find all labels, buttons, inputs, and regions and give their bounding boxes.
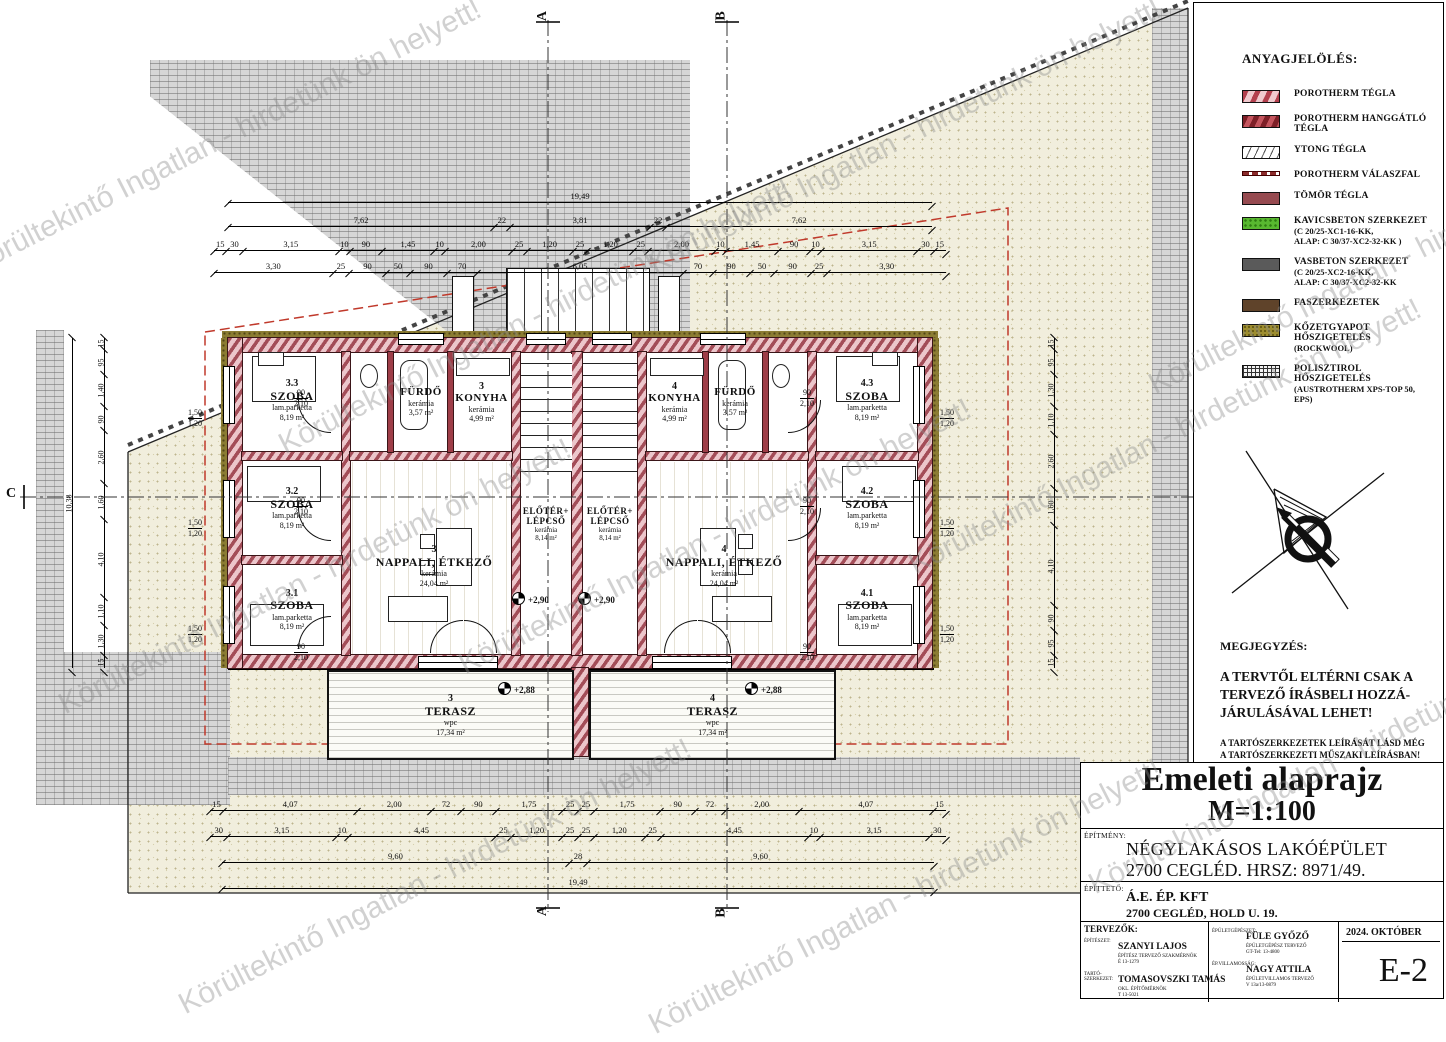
room-name: TERASZ <box>425 705 476 719</box>
material-label: VASBETON SZERKEZET <box>1294 257 1408 267</box>
material-spec: (C 20/25-XC1-16-KK, <box>1294 226 1427 236</box>
room-label: 4 TERASZ wpc 17,34 m² <box>589 670 836 760</box>
notes-title: MEGJEGYZÉS: <box>1220 639 1433 654</box>
dimension-chain: 19,49 <box>222 876 934 892</box>
dimension-chain: 3,3025905090706,0570905090253,30 <box>214 260 946 276</box>
material-swatch <box>1242 90 1280 103</box>
drawing-scale: M=1:100 <box>1208 797 1316 828</box>
material-swatch <box>1242 299 1280 312</box>
room-area: 24,04 m² <box>420 579 449 588</box>
material-swatch <box>1242 115 1280 128</box>
room-label: ELŐTÉR+ LÉPCSŐ kerámia 8,14 m² <box>518 468 574 580</box>
room-number: 4 <box>710 693 715 705</box>
legend-items: POROTHERM TÉGLA POROTHERM HANGGÁTLÓ TÉGL… <box>1214 89 1433 404</box>
room-floor-material: kerámia <box>599 526 622 534</box>
building-name: NÉGYLAKÁSOS LAKÓÉPÜLET <box>1126 839 1443 860</box>
dimension-chain: 7,62223,81227,62 <box>228 214 932 230</box>
designer-role: TARTÓ-SZERKEZET: <box>1084 969 1118 1000</box>
material-spec: (AUSTROTHERM XPS-TOP 50, EPS) <box>1294 384 1433 404</box>
dimension-chain: 154,072,0072901,7525251,7590722,004,0715 <box>210 798 946 814</box>
legend-panel: ANYAGJELÖLÉS: POROTHERM TÉGLA POROTHERM … <box>1193 2 1444 764</box>
dimension-chain-vertical: 10,38 <box>64 338 80 668</box>
level-symbol-icon <box>498 682 511 695</box>
designer-role: ÉPÜLETGÉPÉSZET: <box>1212 926 1246 957</box>
architectural-sheet: { "watermark": {"text": "Körültekintő In… <box>0 0 1446 1000</box>
drawing-date: 2024. OKTÓBER <box>1342 924 1440 942</box>
room-number: 4 <box>722 544 727 556</box>
room-area: 8,19 m² <box>855 521 880 530</box>
window-dimension: 1,501,20 <box>940 408 954 428</box>
room-name: SZOBA <box>845 390 888 404</box>
room-area: 8,19 m² <box>280 622 305 631</box>
material-label: POROTHERM TÉGLA <box>1294 89 1396 99</box>
door-dimension: 902,10 <box>294 496 308 516</box>
notes-subnote: A TARTÓSZERKEZETEK LEÍRÁSÁT LÁSD MÉG <box>1220 737 1433 750</box>
section-marker-b-top: B <box>714 11 730 20</box>
material-label: TÖMÖR TÉGLA <box>1294 191 1369 201</box>
level-symbol-icon <box>745 682 758 695</box>
legend-item: VASBETON SZERKEZET (C 20/25-XC2-16-KK, A… <box>1242 257 1433 287</box>
room-floor-material: wpc <box>444 718 457 727</box>
room-floor-material: lam.parketta <box>847 511 887 520</box>
room-name: ELŐTÉR+ LÉPCSŐ <box>518 506 574 527</box>
designer-name: FÜLE GYŐZŐ <box>1246 932 1309 942</box>
building-address: 2700 CEGLÉD. HRSZ: 8971/49. <box>1126 860 1443 881</box>
room-area: 8,19 m² <box>280 413 305 422</box>
room-name: NAPPALI, ÉTKEZŐ <box>666 556 783 570</box>
room-name: FÜRDŐ <box>400 386 442 399</box>
room-number: 3 <box>448 693 453 705</box>
room-name: ELŐTÉR+ LÉPCSŐ <box>582 506 638 527</box>
room-name: SZOBA <box>845 599 888 613</box>
material-swatch <box>1242 365 1280 378</box>
room-label: 4 NAPPALI, ÉTKEZŐ kerámia 24,04 m² <box>645 486 803 646</box>
material-swatch <box>1242 217 1280 230</box>
legend-item: FASZERKEZETEK <box>1242 298 1433 312</box>
material-label: FASZERKEZETEK <box>1294 298 1380 308</box>
building-label: ÉPÍTMÉNY: <box>1084 831 1126 840</box>
room-floor-material: lam.parketta <box>847 403 887 412</box>
room-label: ELŐTÉR+ LÉPCSŐ kerámia 8,14 m² <box>582 468 638 580</box>
designer-credential: É 13-1279 <box>1118 960 1197 967</box>
material-spec: (ROCKWOOL) <box>1294 343 1433 353</box>
room-label: FÜRDŐ kerámia 3,57 m² <box>391 354 451 450</box>
room-floor-material: kerámia <box>408 399 434 408</box>
legend-item: POROTHERM TÉGLA <box>1242 89 1433 103</box>
room-floor-material: lam.parketta <box>272 613 312 622</box>
room-label: 4 KONYHA kerámia 4,99 m² <box>644 354 705 450</box>
notes-warning: JÁRULÁSÁVAL LEHET! <box>1220 704 1433 722</box>
material-spec: ALAP: C 30/37-XC2-32-KK ) <box>1294 236 1427 246</box>
window-dimension: 1,501,20 <box>188 518 202 538</box>
room-number: 4.2 <box>861 486 874 498</box>
notes-subnote: A TARTÓSZERKEZETI MŰSZAKI LEÍRÁSBAN! <box>1220 749 1433 762</box>
window-dimension: 1,501,20 <box>188 408 202 428</box>
room-floor-material: kerámia <box>662 405 688 414</box>
room-floor-material: kerámia <box>469 405 495 414</box>
material-label: KŐZETGYAPOT HŐSZIGETELÉS <box>1294 323 1433 343</box>
designer-credential: V 13a/13-0879 <box>1246 983 1314 990</box>
room-number: 4 <box>672 381 677 393</box>
dimension-chain-vertical: 15951,40902,601,604,101,101,3015 <box>96 338 112 668</box>
room-name: KONYHA <box>455 392 508 405</box>
room-label: 3.1 SZOBA lam.parketta 8,19 m² <box>242 564 342 655</box>
room-area: 3,57 m² <box>723 408 748 417</box>
legend-item: POROTHERM HANGGÁTLÓ TÉGLA <box>1242 114 1433 134</box>
room-number: 4.3 <box>861 378 874 390</box>
room-label: FÜRDŐ kerámia 3,57 m² <box>705 354 765 450</box>
room-floor-material: kerámia <box>535 526 558 534</box>
material-spec: (C 20/25-XC2-16-KK, <box>1294 267 1408 277</box>
client-name: Á.E. ÉP. KFT <box>1126 890 1443 906</box>
room-area: 17,34 m² <box>698 728 727 737</box>
north-arrow-icon <box>1226 441 1396 616</box>
legend-item: KŐZETGYAPOT HŐSZIGETELÉS (ROCKWOOL) <box>1242 323 1433 353</box>
room-area: 8,14 m² <box>535 534 557 542</box>
dimension-chain-vertical: 15951,301,102,601,604,10909515 <box>1046 338 1062 668</box>
level-marker: +2,88 <box>498 682 535 695</box>
room-area: 3,57 m² <box>409 408 434 417</box>
legend-item: POROTHERM VÁLASZFAL <box>1242 170 1433 180</box>
room-area: 4,99 m² <box>469 414 494 423</box>
level-marker: +2,90 <box>512 592 549 605</box>
material-label: POLISZTIROL HŐSZIGETELÉS <box>1294 364 1433 384</box>
room-floor-material: kerámia <box>722 399 748 408</box>
section-marker-a-bottom: A <box>535 906 551 916</box>
legend-item: KAVICSBETON SZERKEZET (C 20/25-XC1-16-KK… <box>1242 216 1433 246</box>
room-name: TERASZ <box>687 705 738 719</box>
level-symbol-icon <box>512 592 525 605</box>
window-dimension: 1,501,20 <box>940 518 954 538</box>
door-dimension: 902,10 <box>294 388 308 408</box>
drawing-title: Emeleti alaprajz <box>1142 763 1383 797</box>
room-floor-material: lam.parketta <box>847 613 887 622</box>
legend-item: YTONG TÉGLA <box>1242 145 1433 159</box>
sheet-number: E-2 <box>1342 942 1440 1000</box>
title-block: Emeleti alaprajz M=1:100 ÉPÍTMÉNY: NÉGYL… <box>1080 762 1444 999</box>
room-label: 3 TERASZ wpc 17,34 m² <box>327 670 574 760</box>
legend-item: POLISZTIROL HŐSZIGETELÉS (AUSTROTHERM XP… <box>1242 364 1433 404</box>
legend-title: ANYAGJELÖLÉS: <box>1242 51 1433 67</box>
designer-name: SZANYI LAJOS <box>1118 942 1187 952</box>
material-label: POROTHERM VÁLASZFAL <box>1294 170 1420 180</box>
designer-role: ÉP.VILLAMOSSÁG: <box>1212 959 1246 990</box>
material-swatch <box>1242 192 1280 205</box>
room-name: NAPPALI, ÉTKEZŐ <box>376 556 493 570</box>
room-name: FÜRDŐ <box>714 386 756 399</box>
designer-name: NAGY ATTILA <box>1246 965 1311 975</box>
material-label: POROTHERM HANGGÁTLÓ TÉGLA <box>1294 114 1433 134</box>
legend-item: TÖMÖR TÉGLA <box>1242 191 1433 205</box>
level-symbol-icon <box>578 592 591 605</box>
room-number: 3 <box>479 381 484 393</box>
room-label: 3 NAPPALI, ÉTKEZŐ kerámia 24,04 m² <box>355 486 513 646</box>
room-number: 3 <box>432 544 437 556</box>
material-label: YTONG TÉGLA <box>1294 145 1366 155</box>
room-floor-material: kerámia <box>711 569 737 578</box>
door-dimension: 902,10 <box>800 388 814 408</box>
notes-warning: A TERVTŐL ELTÉRNI CSAK A <box>1220 668 1433 686</box>
section-marker-c-left: C <box>6 486 16 502</box>
level-marker: +2,88 <box>745 682 782 695</box>
material-spec: ALAP: C 30/37-XC2-32-KK <box>1294 277 1408 287</box>
room-name: SZOBA <box>845 498 888 512</box>
room-label: 3.2 SZOBA lam.parketta 8,19 m² <box>242 460 342 556</box>
room-label: 4.1 SZOBA lam.parketta 8,19 m² <box>816 564 918 655</box>
room-area: 24,04 m² <box>710 579 739 588</box>
material-swatch <box>1242 171 1280 176</box>
dimension-chain: 9,60289,60 <box>222 850 934 866</box>
designer-role: ÉPÍTÉSZET: <box>1084 936 1118 967</box>
room-area: 8,19 m² <box>855 622 880 631</box>
window-dimension: 1,501,20 <box>188 624 202 644</box>
room-area: 17,34 m² <box>436 728 465 737</box>
client-address: 2700 CEGLÉD, HOLD U. 19. <box>1126 906 1443 921</box>
room-name: KONYHA <box>648 392 701 405</box>
dimension-chain: 19,49 <box>228 190 932 206</box>
material-swatch <box>1242 258 1280 271</box>
section-marker-b-bottom: B <box>714 908 730 917</box>
room-floor-material: kerámia <box>421 569 447 578</box>
section-marker-a-top: A <box>535 11 551 21</box>
window-dimension: 1,501,20 <box>940 624 954 644</box>
designers-label: TERVEZŐK: <box>1084 924 1205 934</box>
room-area: 8,19 m² <box>280 521 305 530</box>
client-label: ÉPÍTTETŐ: <box>1084 884 1124 893</box>
room-label: 3.3 SZOBA lam.parketta 8,19 m² <box>242 348 342 452</box>
room-area: 8,14 m² <box>599 534 621 542</box>
door-dimension: 902,10 <box>800 496 814 516</box>
room-label: 4.3 SZOBA lam.parketta 8,19 m² <box>816 348 918 452</box>
designer-credential: GT-Tel: 13-4800 <box>1246 950 1309 957</box>
room-name: SZOBA <box>270 599 313 613</box>
notes-warning: TERVEZŐ ÍRÁSBELI HOZZÁ- <box>1220 686 1433 704</box>
room-label: 4.2 SZOBA lam.parketta 8,19 m² <box>816 460 918 556</box>
notes-block: MEGJEGYZÉS: A TERVTŐL ELTÉRNI CSAK A TER… <box>1220 639 1433 762</box>
room-label: 3 KONYHA kerámia 4,99 m² <box>451 354 512 450</box>
level-marker: +2,90 <box>578 592 615 605</box>
door-dimension: 902,10 <box>800 642 814 662</box>
room-floor-material: wpc <box>706 718 719 727</box>
dimension-chain: 303,15104,45251,2025251,20254,45103,1530 <box>210 824 946 840</box>
material-label: KAVICSBETON SZERKEZET <box>1294 216 1427 226</box>
material-swatch <box>1242 146 1280 159</box>
door-dimension: 902,10 <box>294 642 308 662</box>
room-area: 8,19 m² <box>855 413 880 422</box>
material-swatch <box>1242 324 1280 337</box>
room-area: 4,99 m² <box>662 414 687 423</box>
dimension-chain: 15303,1510901,45102,00251,20251,20252,00… <box>214 238 946 254</box>
